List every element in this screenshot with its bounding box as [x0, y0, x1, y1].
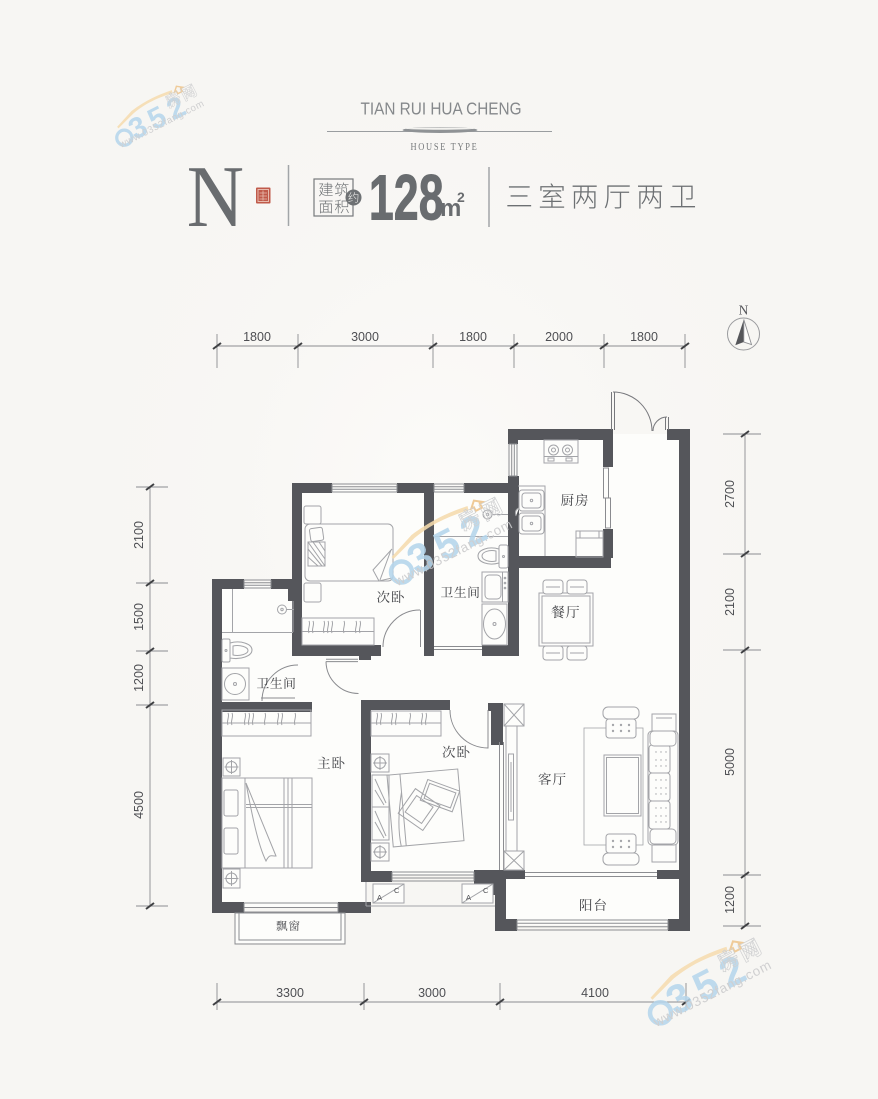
svg-text:A: A: [377, 893, 382, 902]
svg-text:1200: 1200: [723, 886, 737, 914]
svg-text:3000: 3000: [418, 986, 446, 1000]
svg-text:2700: 2700: [723, 480, 737, 508]
svg-text:C: C: [394, 886, 400, 895]
svg-text:4100: 4100: [581, 986, 609, 1000]
svg-text:128: 128: [369, 162, 444, 234]
svg-text:HOUSE TYPE: HOUSE TYPE: [411, 142, 479, 153]
svg-text:2: 2: [457, 189, 465, 205]
svg-text:2000: 2000: [545, 330, 573, 344]
svg-text:C: C: [483, 886, 489, 895]
svg-text:1200: 1200: [132, 664, 146, 692]
svg-text:3000: 3000: [351, 330, 379, 344]
svg-text:4500: 4500: [132, 791, 146, 819]
svg-text:2100: 2100: [723, 588, 737, 616]
svg-text:A: A: [466, 893, 471, 902]
svg-text:1800: 1800: [459, 330, 487, 344]
svg-text:1800: 1800: [630, 330, 658, 344]
svg-text:5000: 5000: [723, 748, 737, 776]
svg-text:1800: 1800: [243, 330, 271, 344]
svg-text:TIAN RUI HUA CHENG: TIAN RUI HUA CHENG: [361, 99, 522, 119]
svg-text:N: N: [739, 303, 749, 318]
svg-text:2100: 2100: [132, 521, 146, 549]
svg-text:N: N: [187, 148, 244, 246]
svg-text:1500: 1500: [132, 603, 146, 631]
svg-text:3300: 3300: [276, 986, 304, 1000]
